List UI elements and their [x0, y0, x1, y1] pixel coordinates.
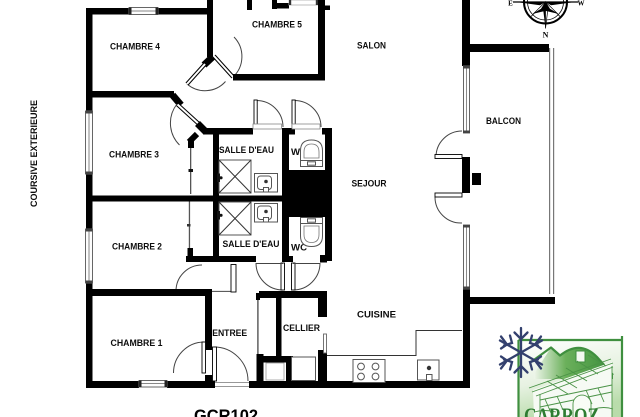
svg-text:E: E: [508, 0, 513, 8]
svg-text:CARROZ: CARROZ: [524, 403, 599, 417]
svg-text:BALCON: BALCON: [486, 116, 521, 127]
svg-text:CHAMBRE 4: CHAMBRE 4: [110, 41, 161, 52]
svg-text:SEJOUR: SEJOUR: [352, 179, 387, 190]
svg-text:COURSIVE EXTERIEURE: COURSIVE EXTERIEURE: [29, 99, 40, 207]
svg-text:N: N: [543, 31, 549, 40]
svg-text:GCR102: GCR102: [194, 406, 258, 417]
svg-text:CHAMBRE 3: CHAMBRE 3: [109, 149, 159, 160]
svg-text:CUISINE: CUISINE: [357, 309, 397, 320]
svg-text:W: W: [578, 0, 585, 8]
svg-text:CHAMBRE 5: CHAMBRE 5: [252, 19, 303, 30]
svg-text:SALON: SALON: [357, 41, 386, 52]
svg-text:SALLE D'EAU: SALLE D'EAU: [223, 239, 280, 250]
svg-text:SALLE D'EAU: SALLE D'EAU: [219, 145, 274, 156]
svg-text:CHAMBRE 1: CHAMBRE 1: [111, 338, 164, 349]
svg-text:ENTREE: ENTREE: [212, 328, 248, 339]
svg-text:CELLIER: CELLIER: [283, 323, 320, 334]
svg-text:CHAMBRE 2: CHAMBRE 2: [112, 242, 162, 253]
